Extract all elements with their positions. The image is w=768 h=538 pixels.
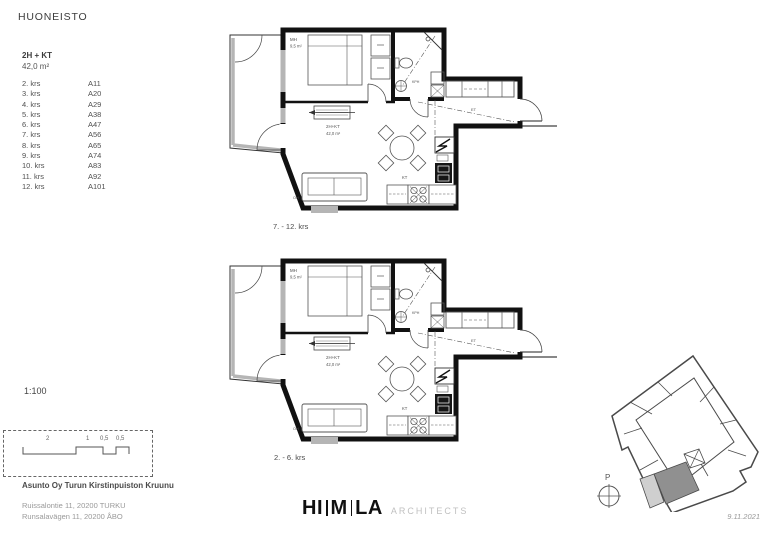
table-row: 4. krsA29 (22, 100, 132, 110)
north-label: P (605, 473, 610, 482)
logo-part: LA (355, 498, 383, 518)
apartment-area: 42,0 m² (22, 62, 49, 71)
table-row: 12. krsA101 (22, 182, 132, 192)
north-arrow-icon: P (597, 473, 621, 508)
scale-number: 2 (46, 436, 49, 442)
table-row: 3. krsA20 (22, 89, 132, 99)
scale-number: 0,5 (116, 436, 124, 442)
floor-cell: 3. krs (22, 89, 88, 99)
unit-cell: A20 (88, 89, 101, 99)
logo-divider (326, 500, 328, 516)
entry-label: ET (471, 107, 477, 112)
table-row: 7. krsA56 (22, 130, 132, 140)
address-sv: Runsalavägen 11, 20200 ÅBO (22, 512, 123, 521)
unit-cell: A92 (88, 172, 101, 182)
architect-logo: HI M LA ARCHITECTS (302, 498, 468, 518)
table-row: 2. krsA11 (22, 79, 132, 89)
scale-bar-graphic (4, 431, 152, 476)
apartment-area-label: 42,0 m² (326, 131, 341, 136)
site-key-plan: P (596, 352, 768, 512)
unit-cell: A74 (88, 151, 101, 161)
floor-plan-2-6 (226, 253, 558, 453)
plan-caption-upper: 7. - 12. krs (273, 222, 308, 231)
floor-cell: 8. krs (22, 141, 88, 151)
unit-cell: A65 (88, 141, 101, 151)
bath-label: KPH (412, 80, 420, 84)
plan-sheet: HUONEISTO 2H + KT 42,0 m² 2. krsA11 3. k… (0, 0, 768, 538)
unit-cell: A38 (88, 110, 101, 120)
bedroom-area-label: 9,5 m² (290, 44, 302, 49)
scale-bar: 2 1 0,5 0,5 (3, 430, 153, 477)
apartment-type-label: 2H+KT (326, 124, 340, 129)
living-label: OH (293, 196, 299, 200)
kitchen-label: KT (402, 175, 408, 180)
unit-cell: A56 (88, 130, 101, 140)
date-stamp: 9.11.2021 (700, 512, 760, 521)
logo-divider (351, 500, 353, 516)
table-row: 6. krsA47 (22, 120, 132, 130)
table-row: 5. krsA38 (22, 110, 132, 120)
table-row: 9. krsA74 (22, 151, 132, 161)
scale-ratio: 1:100 (24, 386, 47, 396)
floor-plan-7-12: MH 9,5 m² 2H+KT 42,0 m² KPH KT ET OH (226, 22, 558, 222)
floor-cell: 6. krs (22, 120, 88, 130)
floor-cell: 11. krs (22, 172, 88, 182)
floor-cell: 9. krs (22, 151, 88, 161)
floor-cell: 12. krs (22, 182, 88, 192)
logo-part: HI (302, 498, 323, 518)
table-row: 8. krsA65 (22, 141, 132, 151)
unit-cell: A29 (88, 100, 101, 110)
plan-caption-lower: 2. - 6. krs (274, 453, 305, 462)
apartment-type: 2H + KT (22, 51, 52, 60)
address-fi: Ruissalontie 11, 20200 TURKU (22, 501, 126, 510)
logo-part: M (331, 498, 348, 518)
bedroom-label: MH (290, 37, 297, 42)
floor-cell: 4. krs (22, 100, 88, 110)
page-title: HUONEISTO (18, 11, 87, 23)
floor-unit-table: 2. krsA11 3. krsA20 4. krsA29 5. krsA38 … (22, 79, 132, 192)
unit-cell: A101 (88, 182, 106, 192)
project-name: Asunto Oy Turun Kirstinpuiston Kruunu (22, 481, 174, 490)
floor-cell: 7. krs (22, 130, 88, 140)
floor-cell: 2. krs (22, 79, 88, 89)
floor-cell: 5. krs (22, 110, 88, 120)
scale-number: 0,5 (100, 436, 108, 442)
logo-suffix: ARCHITECTS (391, 500, 469, 516)
scale-number: 1 (86, 436, 89, 442)
unit-cell: A47 (88, 120, 101, 130)
floor-cell: 10. krs (22, 161, 88, 171)
table-row: 11. krsA92 (22, 172, 132, 182)
unit-cell: A83 (88, 161, 101, 171)
table-row: 10. krsA83 (22, 161, 132, 171)
unit-cell: A11 (88, 79, 101, 89)
